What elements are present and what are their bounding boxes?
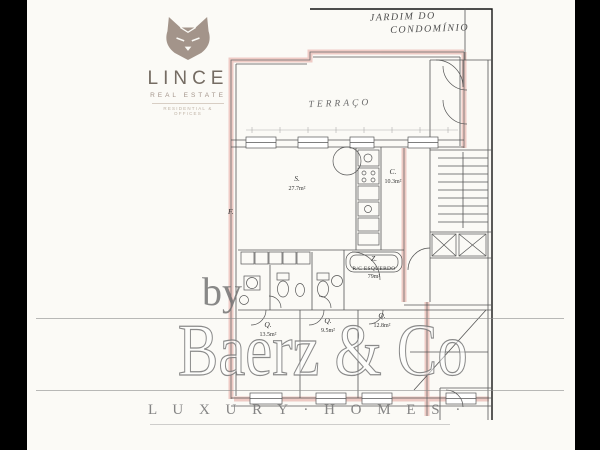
watermark-brand: Baerz & Co — [178, 312, 432, 390]
living-room-area: 27.7m² — [289, 186, 306, 192]
dimension-ticks — [246, 127, 458, 133]
elevator-shafts — [432, 234, 486, 256]
hall-label: Z. — [371, 254, 377, 263]
terrace-label: TERRAÇO — [308, 98, 371, 110]
unit-area: 79m² — [368, 274, 381, 280]
kitchen-area: 10.3m² — [385, 179, 402, 185]
watermark-underline — [150, 424, 450, 425]
living-room-label: S. — [294, 174, 300, 183]
facade-label: F. — [227, 207, 234, 216]
unit-caption: R/C ESQUERDO — [352, 266, 395, 272]
scanned-floorplan-page: LINCE REAL ESTATE RESIDENTIAL & OFFICES … — [0, 0, 600, 450]
watermark-by: by — [202, 268, 242, 315]
watermark-tagline: L U X U R Y · H O M E S · — [148, 402, 458, 419]
kitchen-label: C. — [390, 167, 397, 176]
